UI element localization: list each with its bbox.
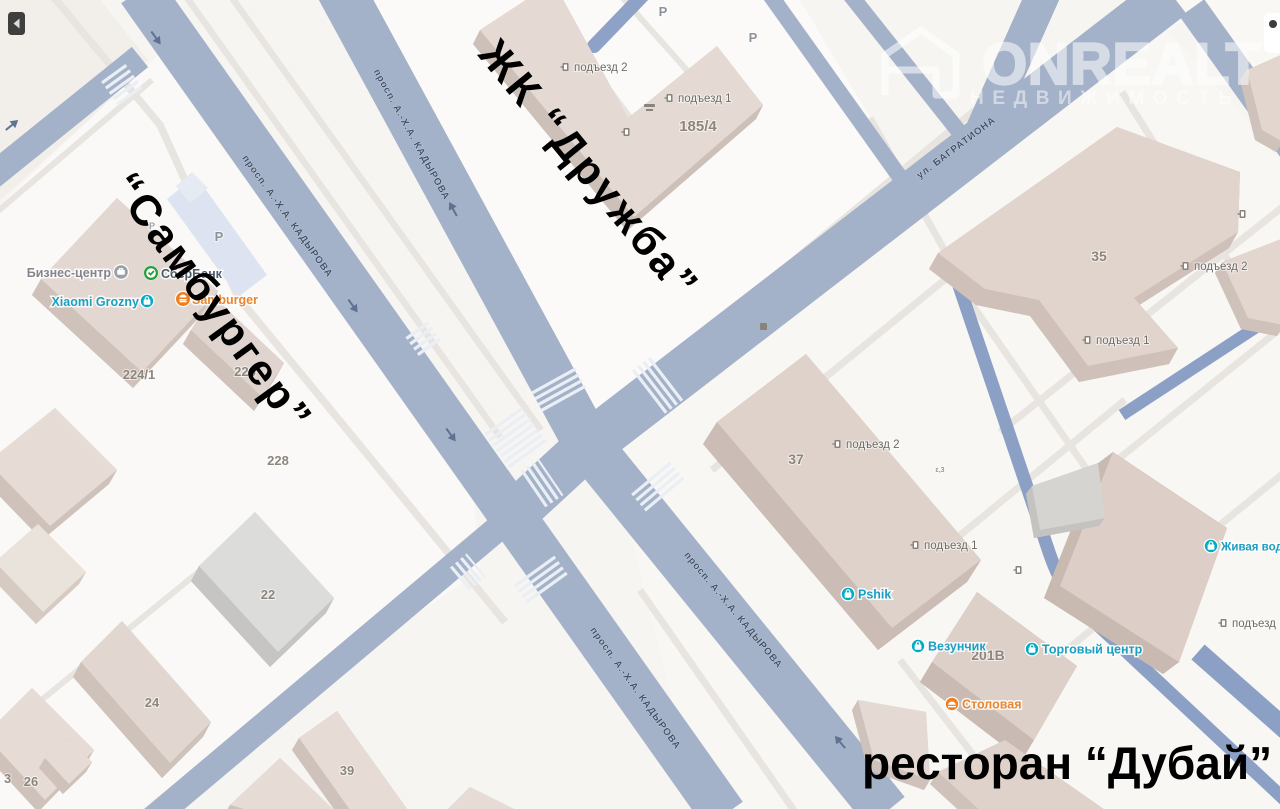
svg-text:Везунчик: Везунчик [928,640,986,654]
svg-text:ресторан “Дубай”: ресторан “Дубай” [862,737,1272,789]
svg-text:35: 35 [1091,248,1107,264]
svg-text:Живая вода: Живая вода [1220,542,1280,554]
svg-text:Р: Р [749,30,758,45]
svg-text:Xiaomi Grozny: Xiaomi Grozny [51,295,139,309]
svg-text:39: 39 [340,763,354,778]
svg-text:185/4: 185/4 [679,118,717,135]
svg-text:подъезд 1: подъезд 1 [1232,618,1280,630]
svg-text:подъезд 1: подъезд 1 [924,540,977,552]
svg-text:37: 37 [788,451,804,467]
svg-text:Р: Р [659,4,668,19]
svg-text:26: 26 [24,774,38,789]
svg-text:24: 24 [145,695,160,710]
svg-text:Р: Р [215,229,224,244]
svg-text:3: 3 [4,771,11,786]
svg-text:228: 228 [267,453,289,468]
svg-text:22: 22 [261,587,275,602]
svg-text:подъезд 1: подъезд 1 [1096,335,1149,347]
svg-text:Торговый центр: Торговый центр [1042,643,1143,657]
svg-text:Бизнес-центр: Бизнес-центр [27,266,112,280]
svg-text:НЕДВИЖИМОСТЬ: НЕДВИЖИМОСТЬ [970,88,1240,109]
svg-text:подъезд 2: подъезд 2 [846,439,899,451]
svg-text:подъезд 2: подъезд 2 [574,62,627,74]
svg-text:Pshik: Pshik [858,588,891,602]
svg-text:подъезд 2: подъезд 2 [1194,261,1247,273]
svg-text:Столовая: Столовая [962,698,1022,712]
svg-text:ε,3: ε,3 [935,467,944,474]
svg-text:подъезд 1: подъезд 1 [678,93,731,105]
svg-text:224/1: 224/1 [123,367,156,382]
